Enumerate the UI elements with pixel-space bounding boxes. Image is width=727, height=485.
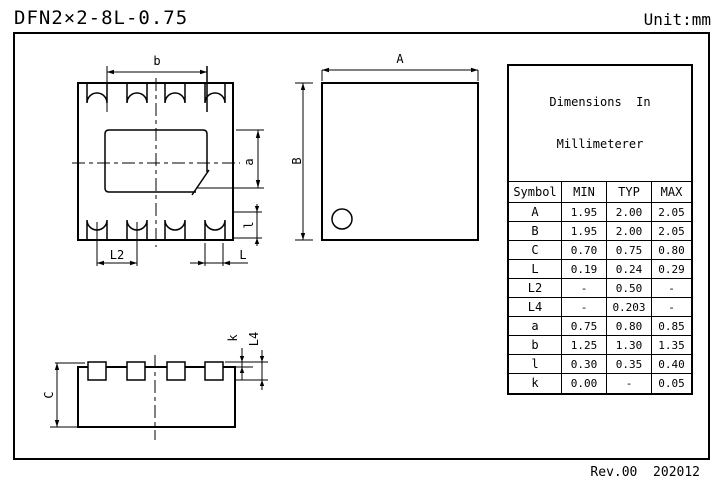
- cell-max: 0.40: [652, 355, 691, 373]
- cell-symbol: C: [509, 241, 562, 259]
- table-row: C 0.70 0.75 0.80: [509, 241, 691, 260]
- top-view-drawing: A B: [285, 50, 495, 260]
- dim-label-b-cap: B: [290, 157, 304, 164]
- cell-min: 0.70: [562, 241, 607, 259]
- table-row: a 0.75 0.80 0.85: [509, 317, 691, 336]
- cell-symbol: l: [509, 355, 562, 373]
- dimension-a-cap: A: [322, 52, 478, 81]
- cell-max: 0.85: [652, 317, 691, 335]
- cell-symbol: b: [509, 336, 562, 354]
- table-row: A 1.95 2.00 2.05: [509, 203, 691, 222]
- col-header-min: MIN: [562, 182, 607, 202]
- dimension-l-cap: L: [190, 243, 248, 266]
- cell-symbol: a: [509, 317, 562, 335]
- table-row: b 1.25 1.30 1.35: [509, 336, 691, 355]
- dimension-l-small: l: [233, 204, 262, 246]
- pin1-marker-circle: [332, 209, 352, 229]
- unit-label: Unit:mm: [644, 10, 711, 29]
- col-header-symbol: Symbol: [509, 182, 562, 202]
- cell-symbol: L2: [509, 279, 562, 297]
- dim-label-l-cap: L: [239, 248, 246, 262]
- cell-symbol: L: [509, 260, 562, 278]
- cell-min: 1.25: [562, 336, 607, 354]
- cell-typ: 0.35: [607, 355, 652, 373]
- cell-typ: 0.80: [607, 317, 652, 335]
- table-row: l 0.30 0.35 0.40: [509, 355, 691, 374]
- cell-typ: 2.00: [607, 203, 652, 221]
- dim-label-l2: L2: [110, 248, 124, 262]
- cell-min: 1.95: [562, 203, 607, 221]
- package-outline-top-view: [322, 83, 478, 240]
- cell-typ: 0.75: [607, 241, 652, 259]
- cell-typ: 0.203: [607, 298, 652, 316]
- dim-label-b: b: [153, 54, 160, 68]
- table-title: Dimensions In Millimeterer: [509, 66, 691, 182]
- drawing-title: DFN2×2-8L-0.75: [14, 7, 188, 29]
- cell-min: 0.00: [562, 374, 607, 393]
- cell-symbol: A: [509, 203, 562, 221]
- col-header-max: MAX: [652, 182, 691, 202]
- dim-label-k: k: [226, 334, 240, 342]
- dim-label-c: C: [42, 391, 56, 398]
- cell-symbol: L4: [509, 298, 562, 316]
- cell-typ: 1.30: [607, 336, 652, 354]
- cell-symbol: k: [509, 374, 562, 393]
- table-row: B 1.95 2.00 2.05: [509, 222, 691, 241]
- dim-label-l-small: l: [242, 221, 256, 228]
- cell-min: 0.30: [562, 355, 607, 373]
- cell-max: -: [652, 279, 691, 297]
- table-title-line2: Millimeterer: [509, 137, 691, 151]
- cell-max: 2.05: [652, 203, 691, 221]
- cell-max: 0.80: [652, 241, 691, 259]
- cell-min: 1.95: [562, 222, 607, 240]
- cell-typ: 2.00: [607, 222, 652, 240]
- cell-max: -: [652, 298, 691, 316]
- cell-typ: 0.50: [607, 279, 652, 297]
- cell-min: 0.75: [562, 317, 607, 335]
- table-row: L4 - 0.203 -: [509, 298, 691, 317]
- dim-label-l4: L4: [247, 332, 261, 346]
- table-row: L2 - 0.50 -: [509, 279, 691, 298]
- table-row: k 0.00 - 0.05: [509, 374, 691, 393]
- cell-max: 2.05: [652, 222, 691, 240]
- cell-typ: -: [607, 374, 652, 393]
- dimension-a: a: [196, 130, 264, 188]
- cell-min: 0.19: [562, 260, 607, 278]
- drawing-sheet: DFN2×2-8L-0.75 Unit:mm Rev.00 202012 b: [0, 0, 727, 485]
- table-title-line1: Dimensions In: [509, 95, 691, 109]
- cell-typ: 0.24: [607, 260, 652, 278]
- dim-label-a: a: [242, 158, 256, 165]
- table-row: L 0.19 0.24 0.29: [509, 260, 691, 279]
- cell-symbol: B: [509, 222, 562, 240]
- revision-label: Rev.00 202012: [590, 465, 700, 480]
- dim-label-a-cap: A: [396, 52, 404, 66]
- table-header-row: Symbol MIN TYP MAX: [509, 182, 691, 203]
- col-header-typ: TYP: [607, 182, 652, 202]
- cell-max: 0.05: [652, 374, 691, 393]
- dimension-b-cap: B: [290, 83, 313, 240]
- bottom-view-drawing: b a l L2: [50, 50, 275, 275]
- side-view-drawing: C k L4: [40, 322, 280, 450]
- cell-min: -: [562, 279, 607, 297]
- cell-max: 1.35: [652, 336, 691, 354]
- cell-max: 0.29: [652, 260, 691, 278]
- cell-min: -: [562, 298, 607, 316]
- dimensions-table: Dimensions In Millimeterer Symbol MIN TY…: [507, 64, 693, 395]
